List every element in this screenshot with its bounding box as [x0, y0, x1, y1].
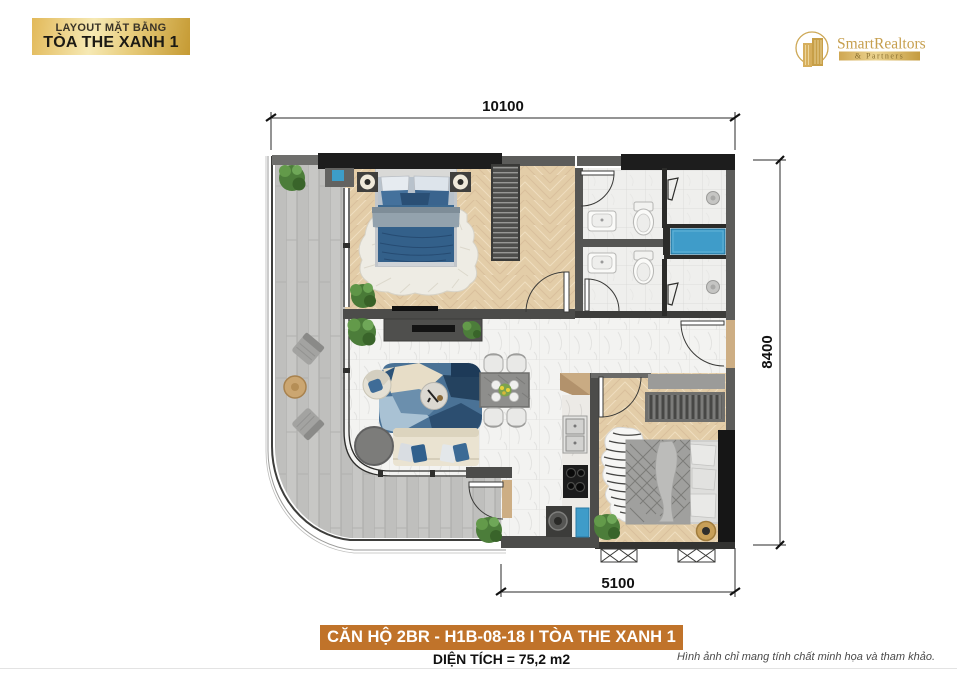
svg-text:5100: 5100 — [601, 575, 634, 592]
svg-text:8400: 8400 — [759, 335, 776, 368]
svg-text:10100: 10100 — [482, 98, 524, 115]
